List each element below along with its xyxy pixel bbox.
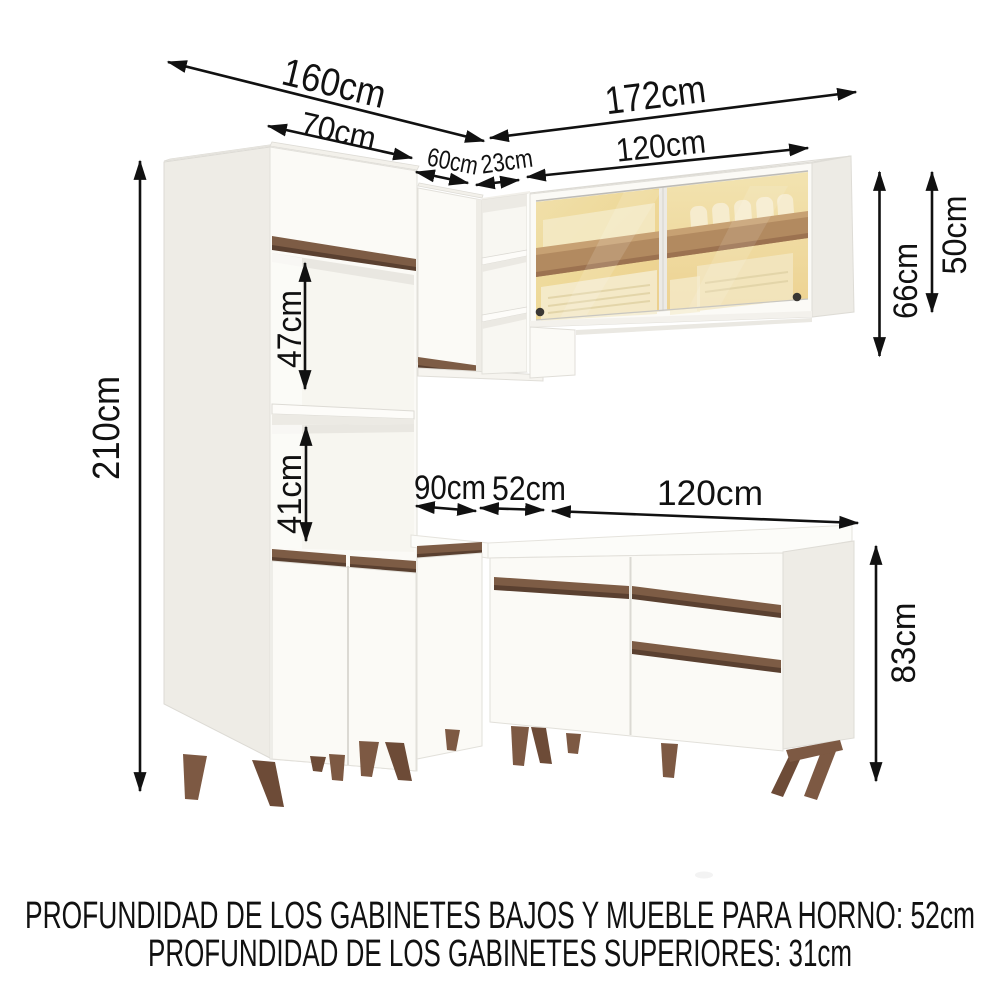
svg-text:90cm: 90cm bbox=[414, 469, 486, 507]
svg-text:50cm: 50cm bbox=[936, 196, 974, 275]
svg-text:PROFUNDIDAD DE LOS GABINETES S: PROFUNDIDAD DE LOS GABINETES SUPERIORES:… bbox=[148, 933, 852, 975]
svg-text:52cm: 52cm bbox=[492, 470, 566, 508]
svg-text:47cm: 47cm bbox=[271, 290, 309, 368]
svg-text:210cm: 210cm bbox=[86, 376, 128, 480]
svg-text:83cm: 83cm bbox=[885, 603, 923, 684]
svg-text:66cm: 66cm bbox=[887, 243, 925, 319]
svg-text:41cm: 41cm bbox=[271, 454, 309, 534]
svg-text:120cm: 120cm bbox=[657, 474, 763, 513]
svg-text:PROFUNDIDAD DE LOS GABINETES B: PROFUNDIDAD DE LOS GABINETES BAJOS Y MUE… bbox=[25, 895, 975, 937]
